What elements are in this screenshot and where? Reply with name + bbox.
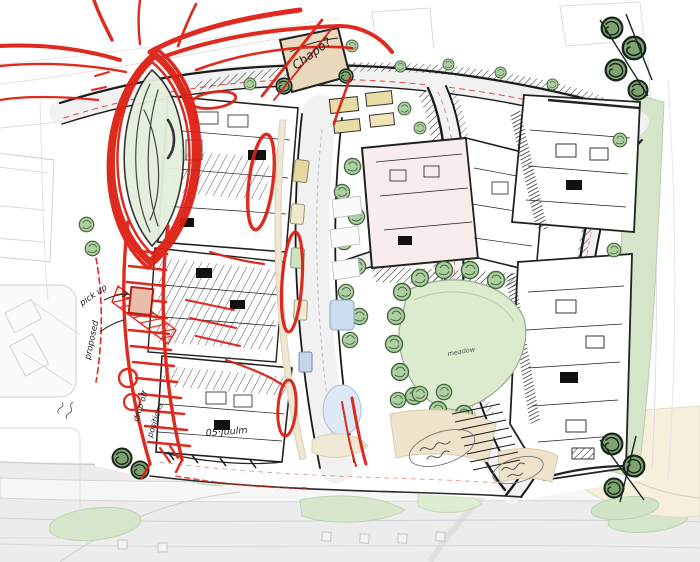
paving-tile-blue [299, 352, 312, 372]
sketch-canvas: Chapo? pick up proposed drop off positio… [0, 0, 700, 562]
masterplan-sketch: Chapo? pick up proposed drop off positio… [0, 0, 700, 562]
east-block-north [510, 95, 640, 232]
illegible-note-3 [56, 398, 74, 419]
west-parking-rows [148, 248, 284, 362]
paving-tile-yellow [293, 159, 310, 183]
paving-tile-cream [290, 204, 305, 225]
water-feature [330, 300, 354, 330]
